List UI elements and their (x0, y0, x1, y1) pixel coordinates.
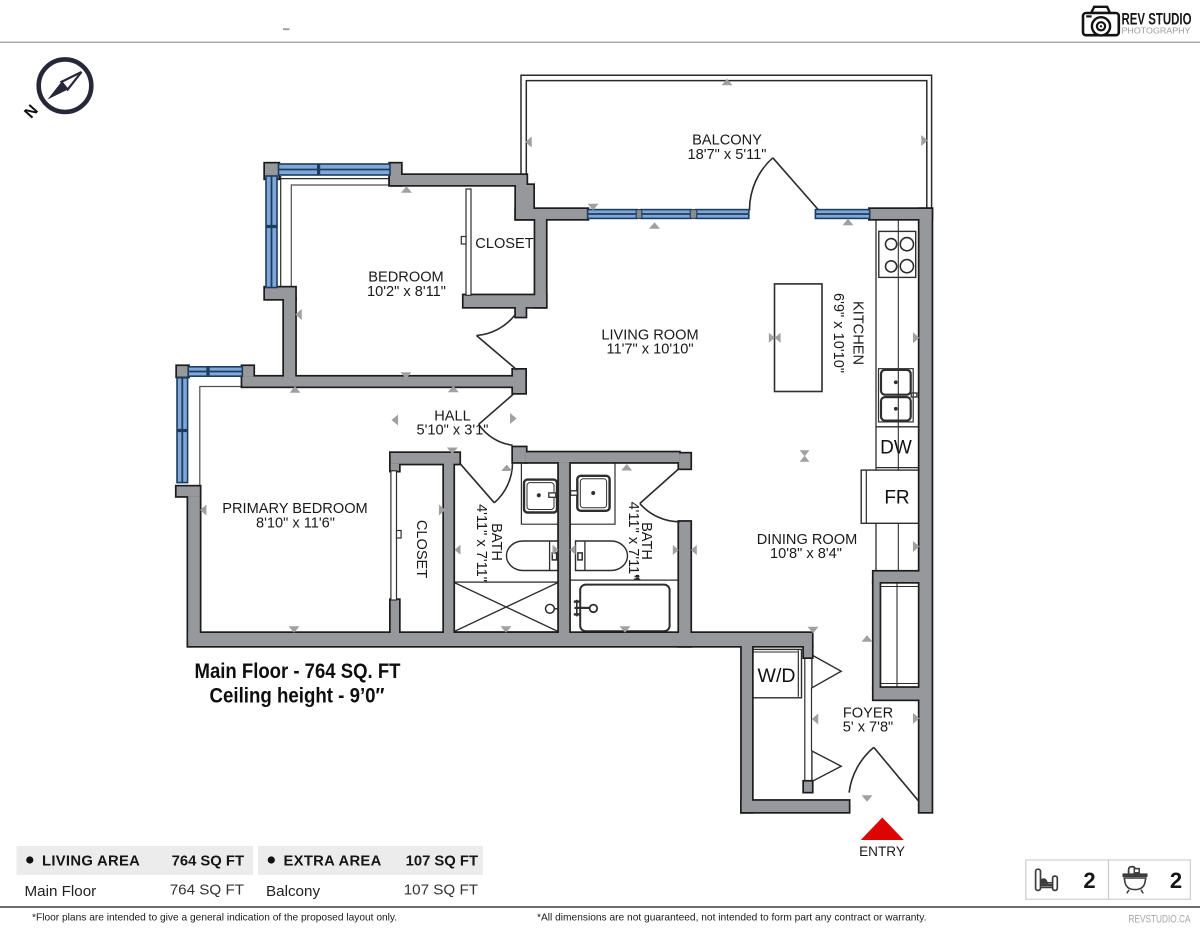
svg-text:764 SQ FT: 764 SQ FT (170, 882, 244, 899)
svg-text:6'9" x 10'10": 6'9" x 10'10" (830, 293, 846, 373)
svg-text:REVSTUDIO.CA: REVSTUDIO.CA (1129, 914, 1191, 926)
svg-text:8'10" x 11'6": 8'10" x 11'6" (256, 516, 335, 532)
svg-text:DW: DW (880, 438, 912, 459)
svg-text:PHOTOGRAPHY: PHOTOGRAPHY (1122, 26, 1191, 36)
svg-text:LIVING AREA: LIVING AREA (42, 854, 140, 870)
svg-text:Main Floor - 764 SQ. FT: Main Floor - 764 SQ. FT (195, 659, 401, 683)
svg-text:KITCHEN: KITCHEN (850, 301, 866, 365)
svg-text:EXTRA AREA: EXTRA AREA (284, 854, 382, 870)
svg-text:CLOSET: CLOSET (413, 520, 429, 578)
svg-text:4'11" x 7'11": 4'11" x 7'11" (473, 504, 489, 582)
svg-text:BATH: BATH (488, 523, 504, 561)
svg-text:107 SQ FT: 107 SQ FT (404, 882, 478, 899)
svg-text:4'11" x 7'11": 4'11" x 7'11" (625, 502, 641, 580)
svg-text:2: 2 (1170, 868, 1182, 893)
svg-text:W/D: W/D (758, 665, 796, 687)
svg-text:764 SQ FT: 764 SQ FT (172, 854, 244, 870)
svg-text:5'10" x 3'1": 5'10" x 3'1" (417, 423, 489, 439)
svg-text:Main Floor: Main Floor (25, 883, 97, 900)
svg-text:11'7" x 10'10": 11'7" x 10'10" (606, 342, 693, 358)
svg-text:107 SQ FT: 107 SQ FT (406, 854, 478, 870)
svg-text:2: 2 (1083, 868, 1095, 893)
svg-text:10'8" x 8'4": 10'8" x 8'4" (770, 546, 842, 562)
svg-text:*All dimensions are not guaran: *All dimensions are not guaranteed, not … (537, 913, 926, 924)
svg-text:18'7" x 5'11": 18'7" x 5'11" (688, 147, 767, 163)
svg-text:ENTRY: ENTRY (859, 844, 905, 859)
svg-text:Balcony: Balcony (266, 883, 320, 900)
svg-text:10'2" x 8'11": 10'2" x 8'11" (367, 284, 446, 300)
svg-text:CLOSET: CLOSET (475, 236, 533, 252)
svg-text:Ceiling height - 9’0″: Ceiling height - 9’0″ (210, 683, 385, 707)
svg-text:FR: FR (884, 488, 909, 509)
svg-text:5' x 7'8": 5' x 7'8" (843, 720, 894, 736)
svg-text:*Floor plans are intended to g: *Floor plans are intended to give a gene… (32, 913, 397, 924)
